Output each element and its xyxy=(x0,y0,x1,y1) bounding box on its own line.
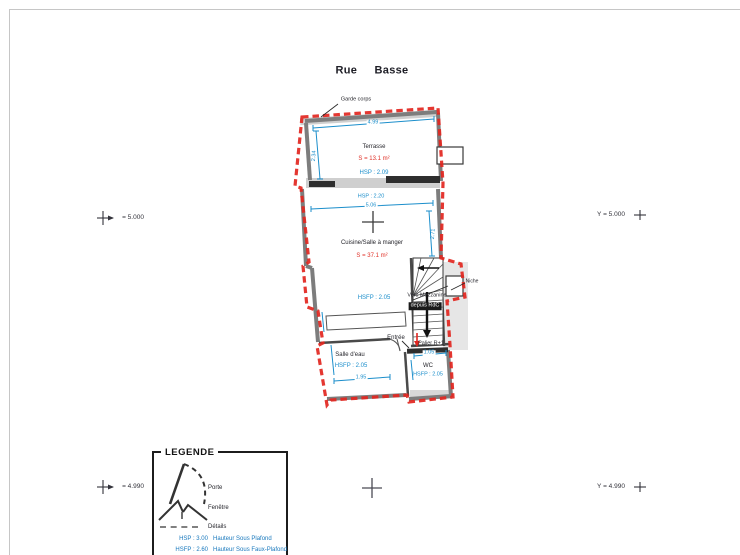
terrasse-depth-dimension: 2.34 xyxy=(312,150,318,161)
legend-label-porte: Porte xyxy=(208,485,222,491)
coord-marker-mid-right: Y = 5.000 xyxy=(597,212,625,219)
wc-false-ceiling-height: HSFP : 2.05 xyxy=(413,372,443,378)
floor-plan-sheet: Rue Basse = 5.000 Y = 5.000 = 4.990 Y = … xyxy=(0,0,740,555)
niche-recess xyxy=(446,276,463,296)
survey-tick-mid-right xyxy=(634,210,646,220)
wc-width-dimension: 1.05 xyxy=(423,350,436,356)
legend-label-details: Détails xyxy=(208,524,226,530)
terrasse-name: Terrasse xyxy=(362,144,385,150)
plan-drawing xyxy=(0,0,740,555)
window-icon xyxy=(155,495,215,523)
stairs-up-label: Vers Mezzanine xyxy=(407,293,446,299)
survey-cross-plan xyxy=(362,211,384,233)
entree-label: Entrée xyxy=(387,335,405,341)
stairs-landing-label: Palier R+1 xyxy=(418,341,444,347)
salle-eau-false-ceiling-height: HSFP : 2.05 xyxy=(335,363,368,369)
stairs-down-label: depuis RdC xyxy=(409,302,442,310)
coord-marker-bottom-right: Y = 4.990 xyxy=(597,484,625,491)
kitchen-counter xyxy=(326,312,406,330)
legend-hsp-label: Hauteur Sous Plafond xyxy=(213,536,272,542)
terrasse-area: S = 13.1 m² xyxy=(358,156,389,162)
dashes-icon xyxy=(160,526,198,528)
coord-marker-mid-left: = 5.000 xyxy=(122,215,144,222)
terrasse-ceiling-height: HSP : 2.09 xyxy=(360,170,389,176)
cuisine-false-ceiling-height: HSFP : 2.05 xyxy=(358,295,391,301)
wc-name: WC xyxy=(423,363,433,369)
survey-cross-bottom-center xyxy=(362,478,382,498)
cuisine-ceiling-height: HSP : 2.20 xyxy=(358,194,385,200)
survey-tick-bottom-left xyxy=(97,480,114,494)
sheet-title: Rue Basse xyxy=(336,66,409,77)
cuisine-depth-dimension: 2.71 xyxy=(431,228,437,239)
survey-tick-mid-left xyxy=(97,211,114,225)
coord-marker-bottom-left: = 4.990 xyxy=(122,484,144,491)
cuisine-width-dimension: 5.06 xyxy=(365,203,378,209)
survey-tick-bottom-right xyxy=(634,482,646,492)
garde-corps-label: Garde corps xyxy=(341,97,371,103)
legend-label-fenetre: Fenêtre xyxy=(208,505,229,511)
legend-title: LEGENDE xyxy=(161,447,218,458)
cuisine-name: Cuisine/Salle à manger xyxy=(341,240,403,246)
legend-hsfp-label: Hauteur Sous Faux-Plafond xyxy=(213,547,287,553)
cuisine-area: S = 37.1 m² xyxy=(356,253,387,259)
salle-eau-width-dimension: 1.95 xyxy=(355,375,368,381)
niche-label: Niche xyxy=(466,280,479,285)
salle-eau-name: Salle d'eau xyxy=(335,352,365,358)
terrasse-width-dimension: 4.99 xyxy=(367,120,380,126)
legend-hsp-key: HSP : 3.00 xyxy=(170,536,208,542)
legend-hsfp-key: HSFP : 2.60 xyxy=(163,547,208,553)
